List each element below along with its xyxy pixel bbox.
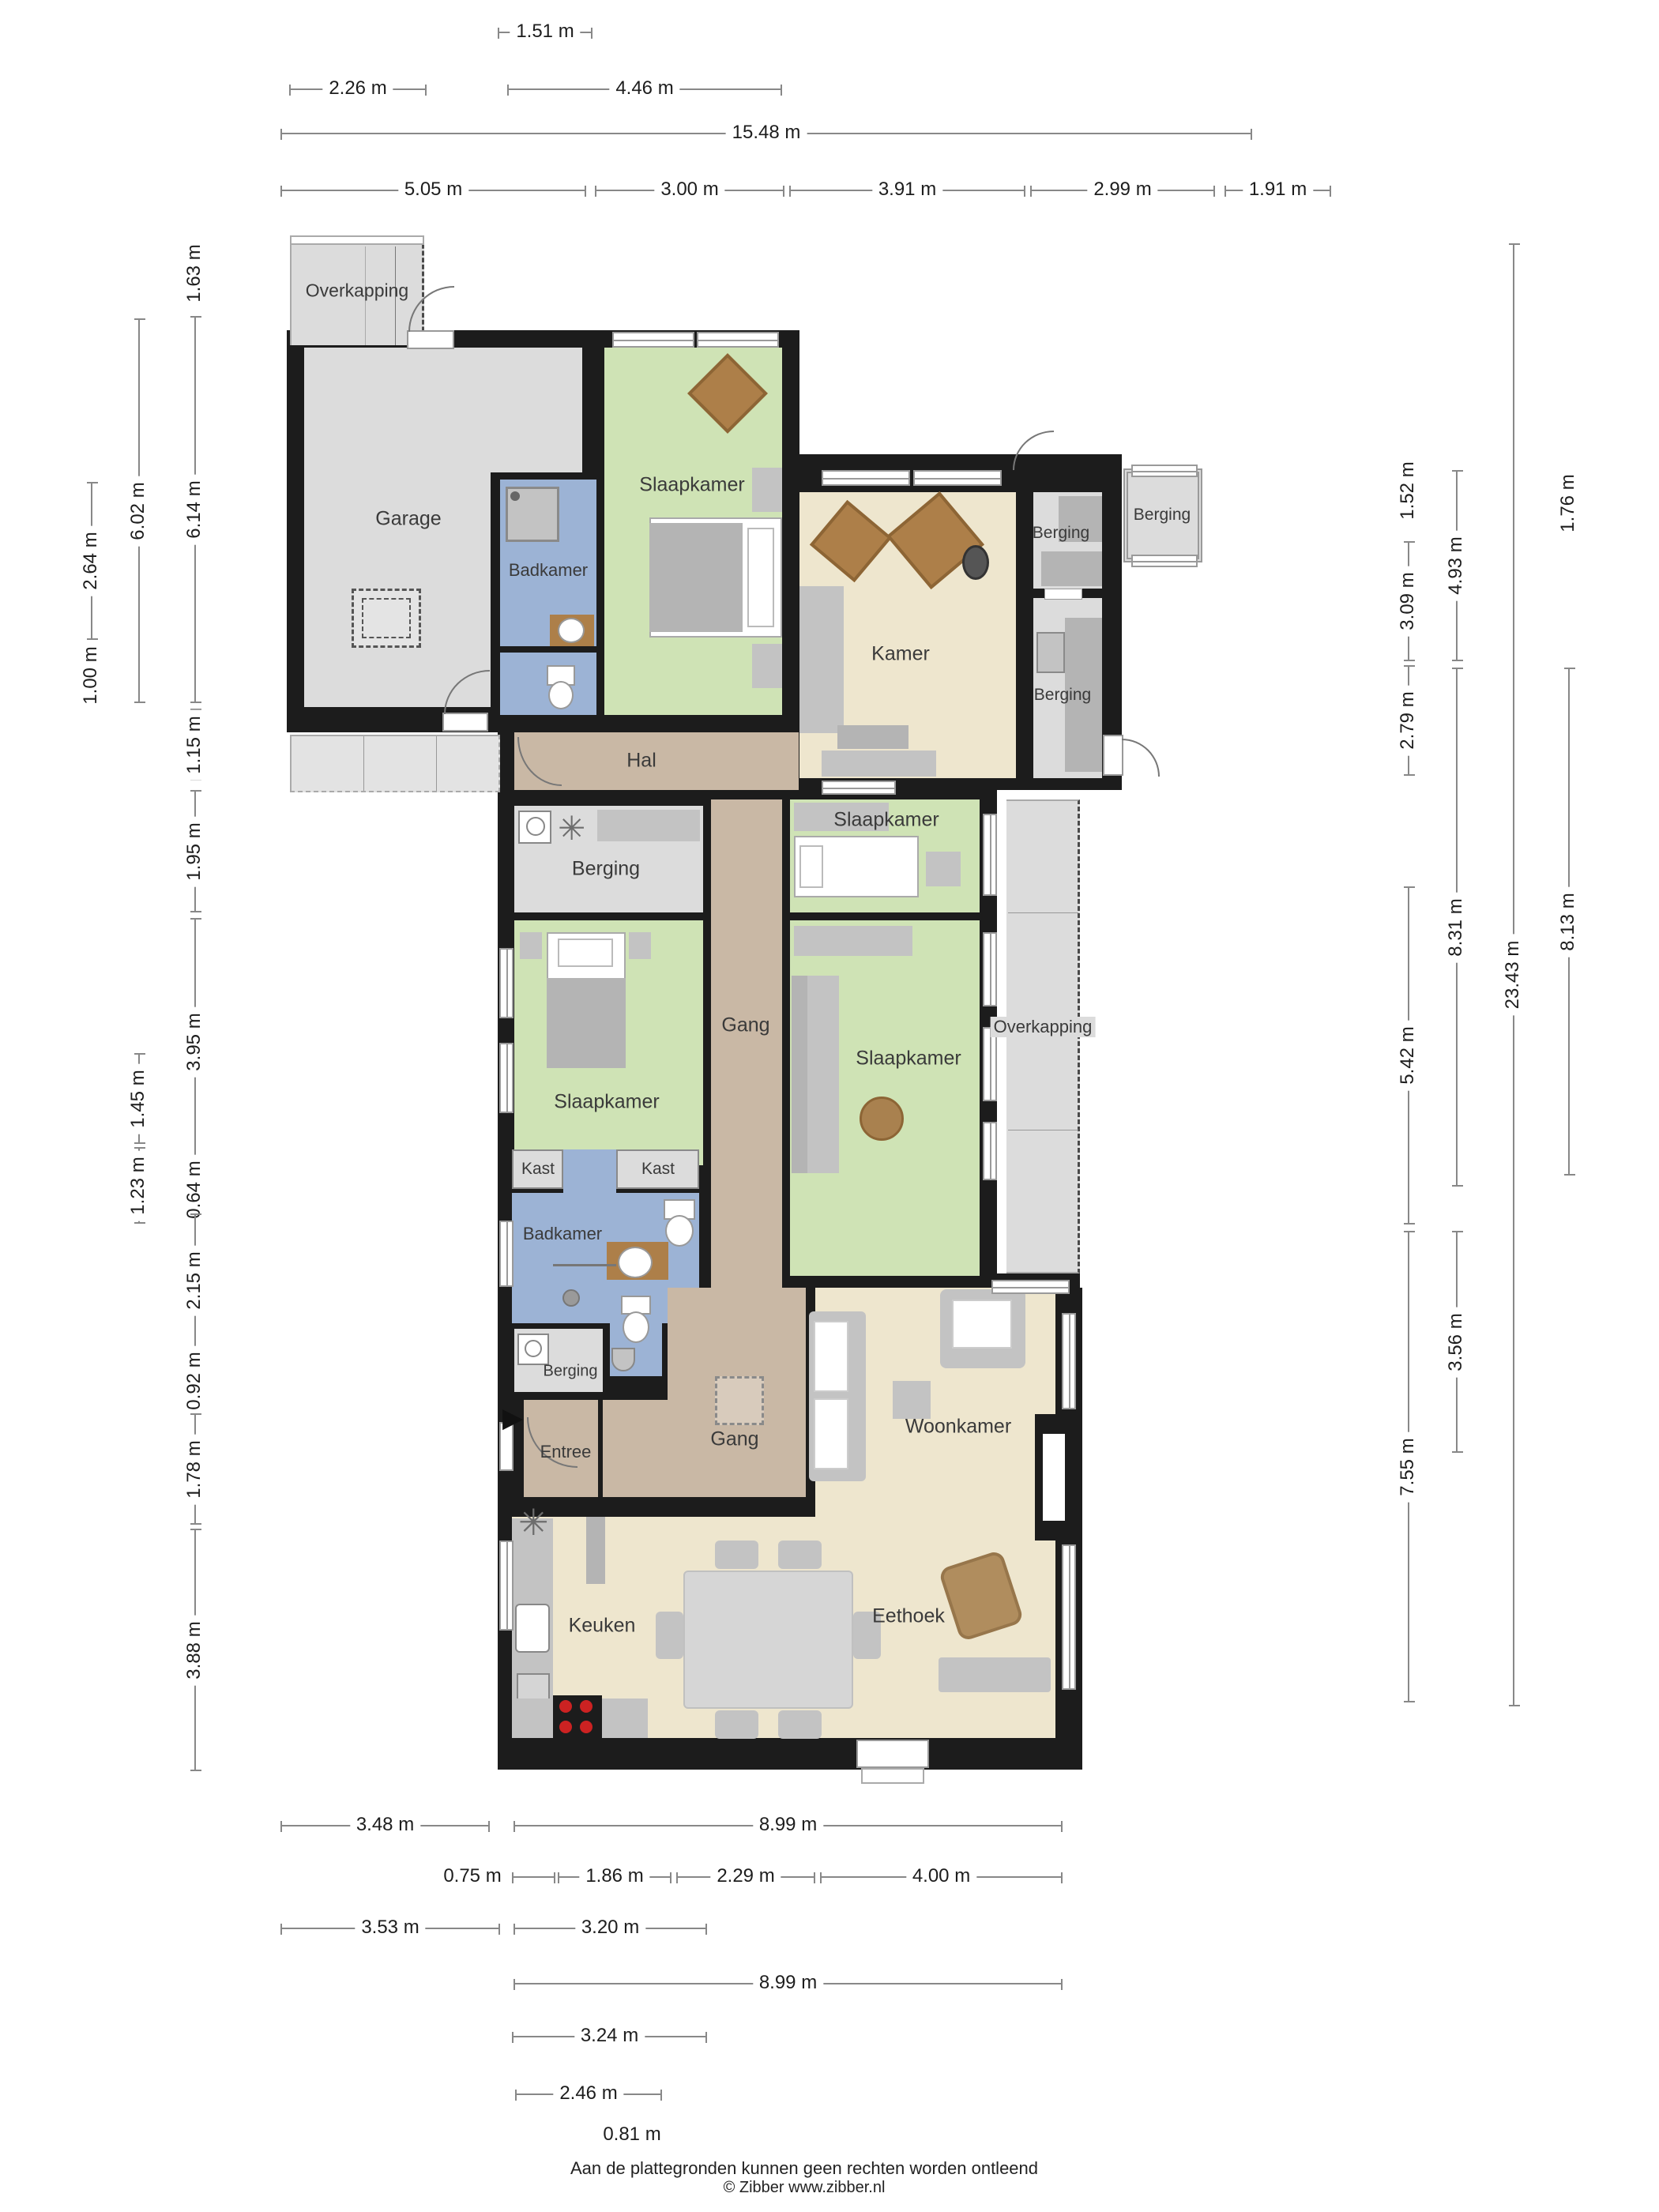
dim-tick [1509, 1705, 1520, 1706]
label-slaapkamer-br: Slaapkamer [856, 1048, 961, 1070]
fan-icon: ✳ [518, 1501, 549, 1544]
window [1131, 555, 1198, 567]
chair [778, 1540, 822, 1569]
dim-label: 2.99 m [1087, 179, 1157, 201]
dim-tick [507, 85, 509, 96]
shelf [1041, 551, 1102, 586]
dim-tick [134, 318, 145, 320]
chair [778, 1710, 822, 1739]
dim-label: 3.20 m [575, 1917, 645, 1939]
label-kast-2: Kast [641, 1160, 675, 1179]
dim-tick [676, 1872, 678, 1883]
dim-label: 1.15 m [183, 709, 205, 780]
shelf [597, 810, 700, 841]
dim-label: 3.00 m [654, 179, 724, 201]
dim-label: 1.63 m [183, 238, 205, 308]
gang-onder-west [603, 1400, 668, 1497]
dim-tick [705, 1924, 707, 1935]
sink-icon [618, 1247, 653, 1278]
dim-tick [513, 1924, 515, 1935]
dim-label: 3.09 m [1397, 566, 1419, 636]
dim-tick [1404, 774, 1415, 776]
dim-tick [190, 1770, 201, 1771]
dim-label: 2.26 m [322, 77, 393, 100]
dim-tick [1452, 1231, 1463, 1232]
dim-tick [498, 28, 499, 39]
label-berging-annex: Berging [1134, 506, 1191, 525]
dim-tick [1030, 186, 1032, 197]
dim-label: 1.00 m [80, 640, 102, 710]
sofa-cushion [814, 1321, 848, 1392]
overkapping-division [1008, 912, 1078, 913]
label-slaapkamer-tr: Slaapkamer [833, 809, 939, 832]
dim-label: 3.24 m [574, 2025, 645, 2047]
window [499, 1043, 513, 1113]
dim-tick [554, 1872, 555, 1883]
tv-cabinet [939, 1657, 1051, 1692]
dim-tick [425, 85, 427, 96]
dim-tick [1404, 1701, 1415, 1702]
label-berging-mid: Berging [572, 858, 640, 881]
dim-label: 15.48 m [726, 122, 807, 144]
dim-tick [585, 186, 586, 197]
utility-sink [1036, 632, 1065, 673]
dim-line [512, 1876, 555, 1878]
label-gang-boven: Gang [721, 1014, 769, 1037]
dim-tick [190, 790, 201, 792]
dim-tick [820, 1872, 822, 1883]
label-kamer: Kamer [871, 643, 930, 666]
dim-tick [513, 1979, 515, 1990]
footer-disclaimer: Aan de plattegronden kunnen geen rechten… [570, 2158, 1038, 2179]
dim-tick [1452, 1185, 1463, 1187]
cabinet [799, 586, 844, 733]
window [1131, 465, 1198, 477]
dim-label: 3.88 m [183, 1615, 205, 1685]
sideboard [822, 750, 936, 777]
label-keuken: Keuken [569, 1615, 636, 1638]
kast-passage [563, 1149, 616, 1193]
dim-label: 4.46 m [609, 77, 679, 100]
burner [559, 1721, 572, 1733]
dim-label: 1.45 m [127, 1063, 149, 1134]
dim-tick [513, 1821, 515, 1832]
label-woonkamer: Woonkamer [905, 1416, 1011, 1439]
dim-tick [1213, 186, 1215, 197]
door-opening [1103, 735, 1123, 776]
shower-head-icon [562, 1289, 580, 1307]
window [983, 1122, 997, 1180]
door-arc [1013, 431, 1054, 470]
bed-pillow [558, 939, 613, 967]
dim-label: 1.78 m [183, 1434, 205, 1504]
label-berging-lower: Berging [1034, 686, 1091, 705]
window [983, 814, 997, 896]
entry-arrow-icon: ▶ [502, 1402, 523, 1434]
door-step [861, 1768, 924, 1784]
dim-tick [190, 1213, 201, 1215]
door-opening [442, 713, 488, 732]
bed-blanket [547, 978, 626, 1068]
door-gap [1044, 589, 1082, 600]
dim-label: 8.31 m [1445, 892, 1467, 962]
dim-tick [814, 1872, 815, 1883]
dim-tick [1452, 660, 1463, 661]
dim-tick [783, 186, 784, 197]
window [1062, 1313, 1076, 1409]
window [499, 1221, 513, 1287]
overkapping-roof-edge [290, 235, 424, 245]
door-arc [1122, 739, 1160, 777]
dim-label: 3.91 m [872, 179, 942, 201]
dim-label: 0.81 m [596, 2124, 667, 2146]
dim-tick [1404, 660, 1415, 661]
dim-tick [134, 1147, 145, 1149]
dim-tick [190, 702, 201, 703]
dim-label: 8.13 m [1557, 886, 1579, 957]
window [697, 332, 779, 348]
dim-tick [1564, 668, 1575, 669]
toilet-bowl-icon [623, 1311, 649, 1343]
dim-tick [1061, 1821, 1063, 1832]
dim-tick [1509, 243, 1520, 245]
chair [656, 1612, 683, 1659]
dim-label: 8.99 m [753, 1814, 823, 1836]
label-hal: Hal [626, 750, 656, 773]
wall-stub [586, 1517, 605, 1584]
porch-post-line [436, 736, 437, 791]
label-gang-onder: Gang [710, 1428, 758, 1451]
burner [580, 1700, 592, 1713]
round-rug-icon [860, 1097, 904, 1141]
nightstand [520, 932, 542, 959]
dim-label: 1.52 m [1397, 455, 1419, 525]
dim-tick [595, 186, 596, 197]
dim-tick [1061, 1979, 1063, 1990]
nightstand [629, 932, 651, 959]
dim-tick [190, 1529, 201, 1530]
dim-tick [1224, 186, 1226, 197]
nightstand [752, 644, 782, 688]
chair [715, 1710, 758, 1739]
dim-tick [1452, 470, 1463, 472]
dim-tick [789, 186, 791, 197]
dim-label: 5.42 m [1397, 1020, 1419, 1090]
room-garage-upper [304, 348, 582, 472]
window [983, 1027, 997, 1101]
dim-label: 3.48 m [350, 1814, 420, 1836]
fireplace-core [1043, 1434, 1065, 1521]
label-berging-top: Berging [1033, 524, 1089, 543]
dim-tick [134, 702, 145, 703]
label-slaapkamer-ml: Slaapkamer [554, 1091, 659, 1114]
dim-tick [1452, 668, 1463, 669]
kitchen-sink [515, 1604, 550, 1653]
label-berging-klein: Berging [544, 1363, 598, 1381]
dim-tick [190, 911, 201, 912]
window [983, 932, 997, 1006]
floorplan: ✳ ▶ [0, 0, 1659, 2212]
shelf [794, 926, 912, 956]
dim-tick [1330, 186, 1331, 197]
window [499, 948, 513, 1018]
dim-label: 1.86 m [579, 1865, 649, 1887]
sideboard [837, 725, 908, 749]
dim-tick [591, 28, 592, 39]
dim-tick [498, 1924, 500, 1935]
dim-tick [1404, 665, 1415, 667]
nightstand [926, 852, 961, 886]
label-slaapkamer-top: Slaapkamer [639, 474, 744, 497]
washer-door-icon [525, 1340, 542, 1357]
dim-tick [289, 85, 291, 96]
sofa-cushion [814, 1398, 848, 1469]
dim-label: 6.02 m [127, 476, 149, 546]
dim-label: 1.91 m [1243, 179, 1313, 201]
garage-hatch-square-inner [362, 598, 411, 638]
dim-tick [87, 482, 98, 483]
bed-blanket [649, 523, 743, 632]
side-table [893, 1381, 931, 1419]
label-garage: Garage [375, 508, 441, 531]
dim-label: 2.64 m [80, 525, 102, 596]
overkapping-division [1008, 1130, 1078, 1130]
label-badkamer-2: Badkamer [523, 1224, 602, 1244]
dim-label: 1.76 m [1557, 468, 1579, 538]
dim-tick [1404, 541, 1415, 543]
dim-tick [515, 2090, 517, 2101]
dim-tick [280, 186, 282, 197]
window [1062, 1544, 1076, 1690]
dim-label: 4.00 m [906, 1865, 976, 1887]
dim-tick [190, 1413, 201, 1415]
dim-tick [134, 1142, 145, 1144]
shower-rail [553, 1264, 616, 1266]
label-kast-1: Kast [521, 1160, 555, 1179]
dining-table [683, 1571, 853, 1709]
dim-tick [134, 1222, 145, 1224]
dim-label: 5.05 m [398, 179, 468, 201]
dim-tick [134, 1053, 145, 1055]
dim-tick [512, 2032, 513, 2043]
dim-label: 2.29 m [710, 1865, 781, 1887]
sink-icon [558, 618, 585, 643]
dim-tick [190, 316, 201, 318]
dim-label: 2.79 m [1397, 685, 1419, 755]
dim-tick [488, 1821, 490, 1832]
dim-tick [1404, 1231, 1415, 1232]
chair [715, 1540, 758, 1569]
label-eethoek: Eethoek [872, 1605, 945, 1628]
sofa-back [792, 976, 807, 1173]
toilet-bowl-icon [548, 681, 574, 709]
dim-tick [1024, 186, 1025, 197]
dim-label: 2.15 m [183, 1245, 205, 1315]
patio-door [856, 1740, 929, 1768]
shower-drain-icon [510, 491, 520, 501]
label-overkapping-tl: Overkapping [306, 280, 408, 302]
dim-tick [1061, 1872, 1063, 1883]
label-badkamer-top: Badkamer [509, 560, 588, 581]
dim-label: 0.92 m [183, 1345, 205, 1416]
nightstand [752, 468, 782, 512]
dim-tick [512, 1872, 513, 1883]
footer-credit: © Zibber www.zibber.nl [724, 2179, 886, 2197]
dim-label: 8.99 m [753, 1972, 823, 1994]
dim-tick [1251, 129, 1252, 140]
dim-tick [280, 1821, 282, 1832]
window [822, 470, 910, 486]
washer-door-icon [526, 817, 545, 836]
dim-label: 4.93 m [1445, 530, 1467, 600]
burner [580, 1721, 592, 1733]
dim-tick [1564, 1174, 1575, 1176]
small-sink-icon [611, 1348, 635, 1371]
dim-tick [280, 1924, 282, 1935]
bed-pillow [799, 845, 823, 888]
dim-label: 2.46 m [553, 2082, 623, 2105]
dim-label: 7.55 m [1397, 1431, 1419, 1502]
porch-post-line [363, 736, 364, 791]
window [612, 332, 694, 348]
burner [559, 1700, 572, 1713]
dim-label: 0.75 m [437, 1865, 507, 1887]
dim-tick [670, 1872, 671, 1883]
dim-label: 1.95 m [183, 816, 205, 886]
dim-tick [660, 2090, 662, 2101]
dim-label: 3.56 m [1445, 1307, 1467, 1377]
fan-icon: ✳ [558, 809, 585, 848]
doormat [715, 1376, 764, 1425]
bed-pillow [747, 528, 774, 627]
window [822, 781, 896, 795]
dim-label: 1.23 m [127, 1150, 149, 1221]
window [991, 1280, 1070, 1294]
room-gang-boven [711, 799, 782, 1288]
toilet-bowl-icon [665, 1215, 694, 1247]
dim-tick [1452, 1451, 1463, 1453]
label-overkapping-r: Overkapping [991, 1017, 1096, 1037]
dim-tick [781, 85, 782, 96]
label-entree: Entree [540, 1442, 592, 1462]
dim-label: 3.53 m [355, 1917, 425, 1939]
dim-label: 23.43 m [1502, 935, 1524, 1016]
tv-icon [962, 545, 989, 580]
door-opening [407, 330, 454, 349]
dim-tick [1404, 1223, 1415, 1224]
dim-tick [1404, 886, 1415, 888]
window [499, 1540, 513, 1631]
dim-tick [190, 1523, 201, 1525]
dim-label: 3.95 m [183, 1006, 205, 1077]
dim-tick [280, 129, 282, 140]
dim-tick [558, 1872, 559, 1883]
armchair-cushion [952, 1300, 1012, 1349]
window [913, 470, 1002, 486]
dim-tick [190, 918, 201, 920]
dim-label: 1.51 m [510, 21, 580, 43]
porch-strip [290, 735, 500, 792]
dim-tick [705, 2032, 707, 2043]
dim-label: 6.14 m [183, 474, 205, 544]
